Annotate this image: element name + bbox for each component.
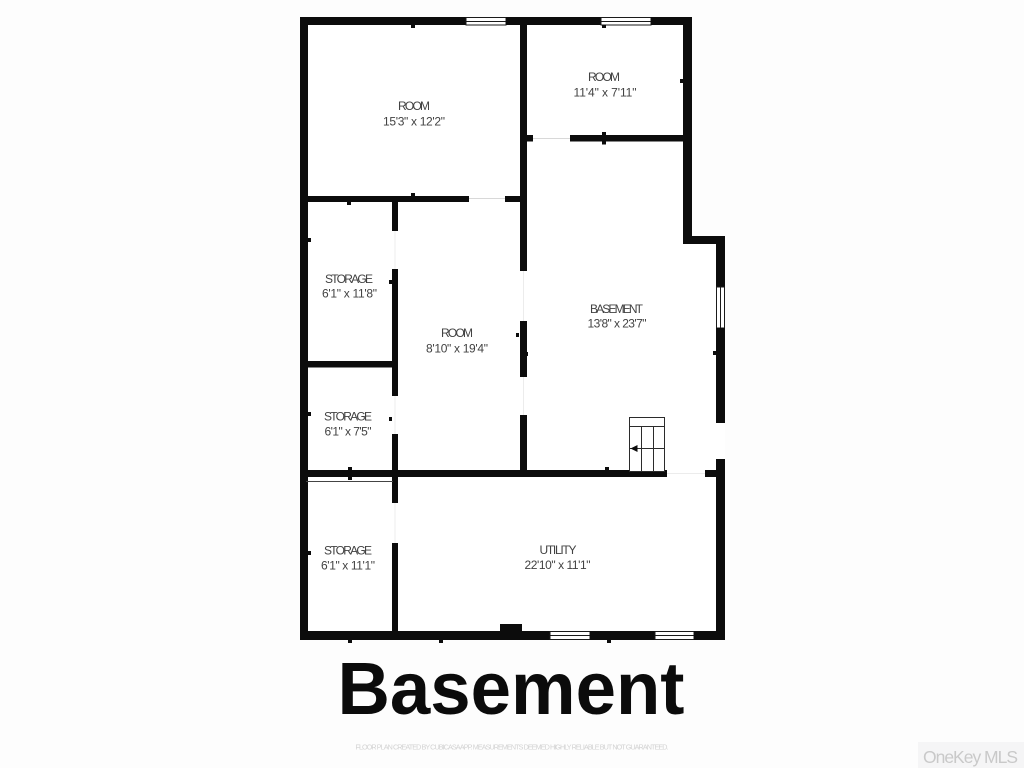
svg-text:OneKey MLS: OneKey MLS — [923, 747, 1018, 767]
svg-text:STORAGE: STORAGE — [324, 544, 372, 558]
svg-text:6'1" x 11'1": 6'1" x 11'1" — [321, 559, 375, 573]
svg-text:ROOM: ROOM — [588, 70, 620, 84]
svg-text:11'4" x 7'11": 11'4" x 7'11" — [574, 86, 637, 100]
svg-text:8'10" x 19'4": 8'10" x 19'4" — [426, 342, 488, 356]
svg-text:6'1" x 11'8": 6'1" x 11'8" — [322, 287, 377, 301]
svg-text:15'3" x 12'2": 15'3" x 12'2" — [383, 115, 445, 129]
svg-text:STORAGE: STORAGE — [324, 410, 372, 424]
svg-text:22'10" x 11'1": 22'10" x 11'1" — [525, 558, 591, 572]
svg-text:ROOM: ROOM — [398, 99, 430, 113]
svg-text:13'8" x 23'7": 13'8" x 23'7" — [588, 317, 647, 331]
svg-text:BASEMENT: BASEMENT — [590, 302, 644, 316]
svg-text:Basement: Basement — [338, 647, 685, 730]
svg-text:STORAGE: STORAGE — [325, 272, 373, 286]
svg-text:6'1" x 7'5": 6'1" x 7'5" — [325, 425, 372, 439]
svg-text:UTILITY: UTILITY — [540, 543, 577, 557]
svg-text:FLOOR PLAN CREATED BY CUBICASA: FLOOR PLAN CREATED BY CUBICASA APP. MEAS… — [356, 743, 669, 752]
svg-text:ROOM: ROOM — [441, 326, 473, 340]
